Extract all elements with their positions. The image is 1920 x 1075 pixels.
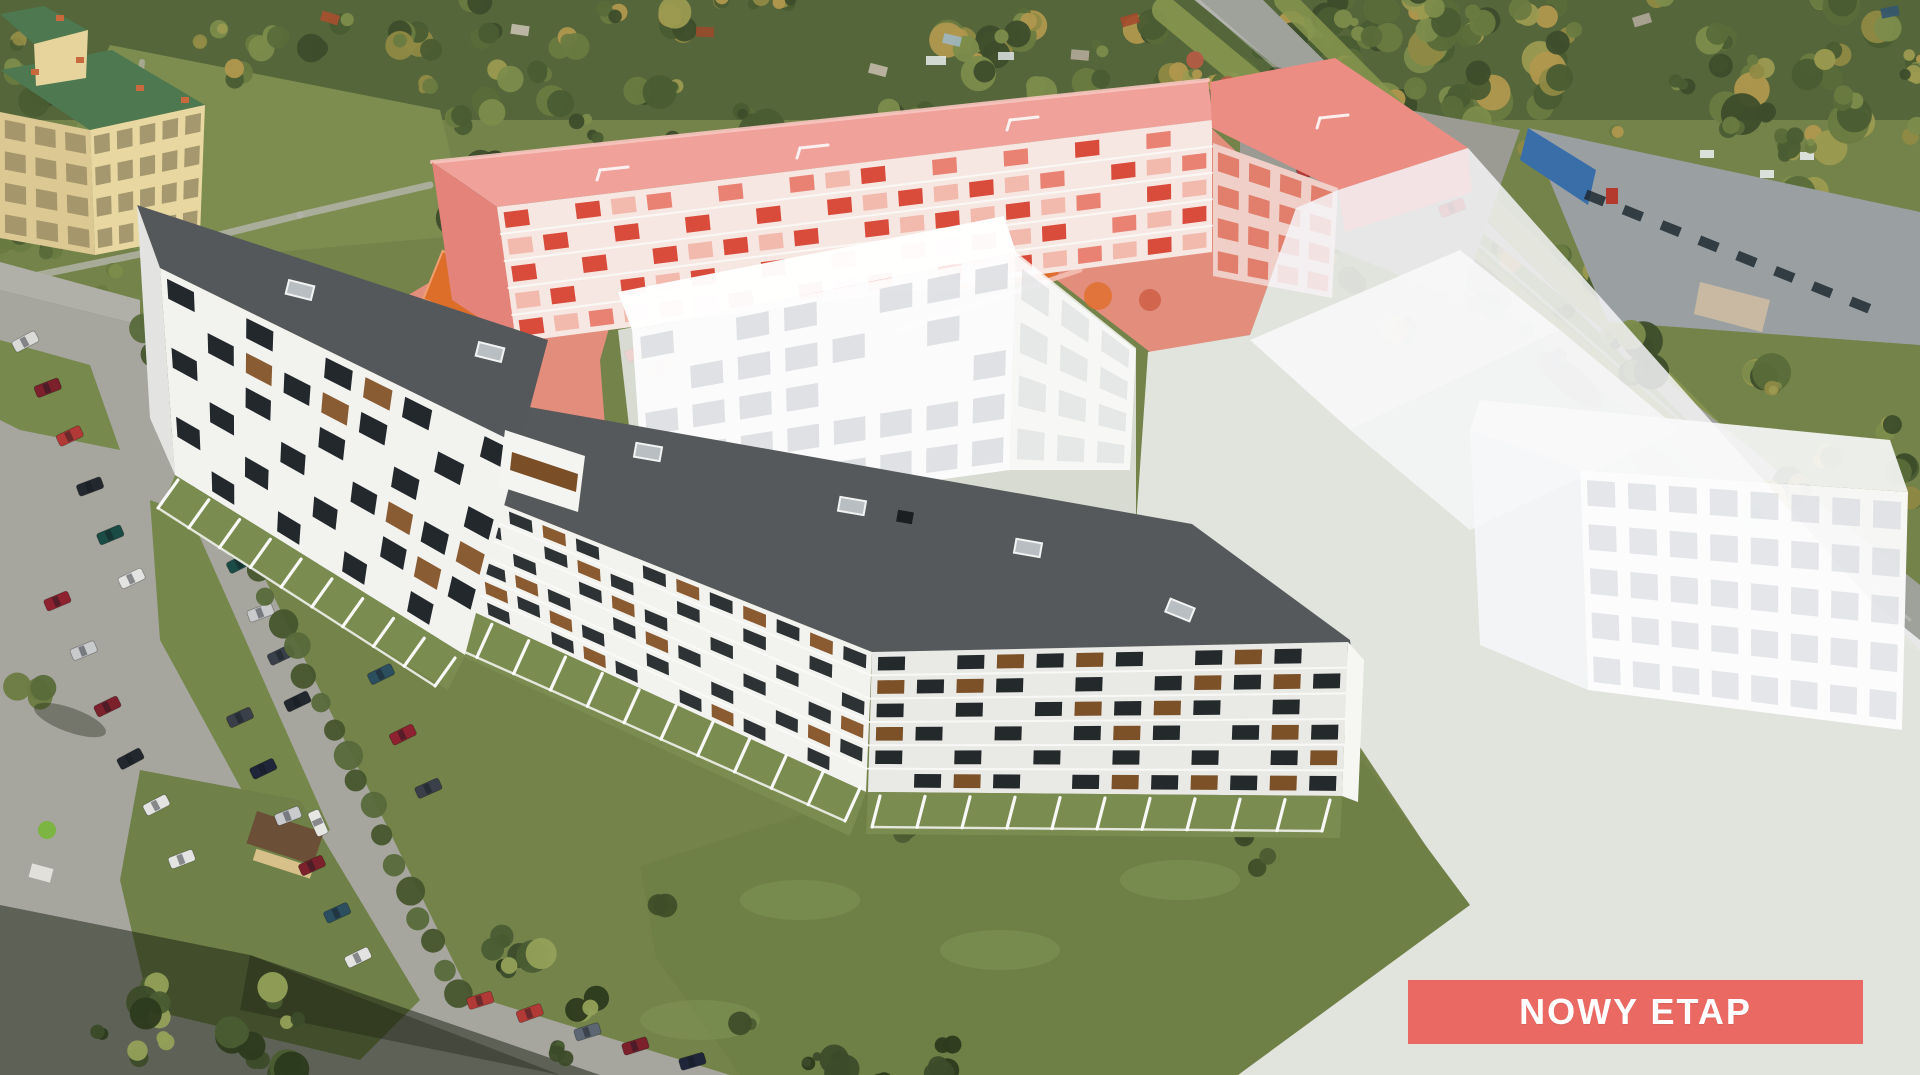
new-stage-badge-label: NOWY ETAP (1519, 991, 1752, 1033)
new-stage-badge[interactable]: NOWY ETAP (1408, 980, 1863, 1044)
aerial-photo-render (0, 0, 1920, 1075)
development-aerial-visualization: NOWY ETAP (0, 0, 1920, 1075)
